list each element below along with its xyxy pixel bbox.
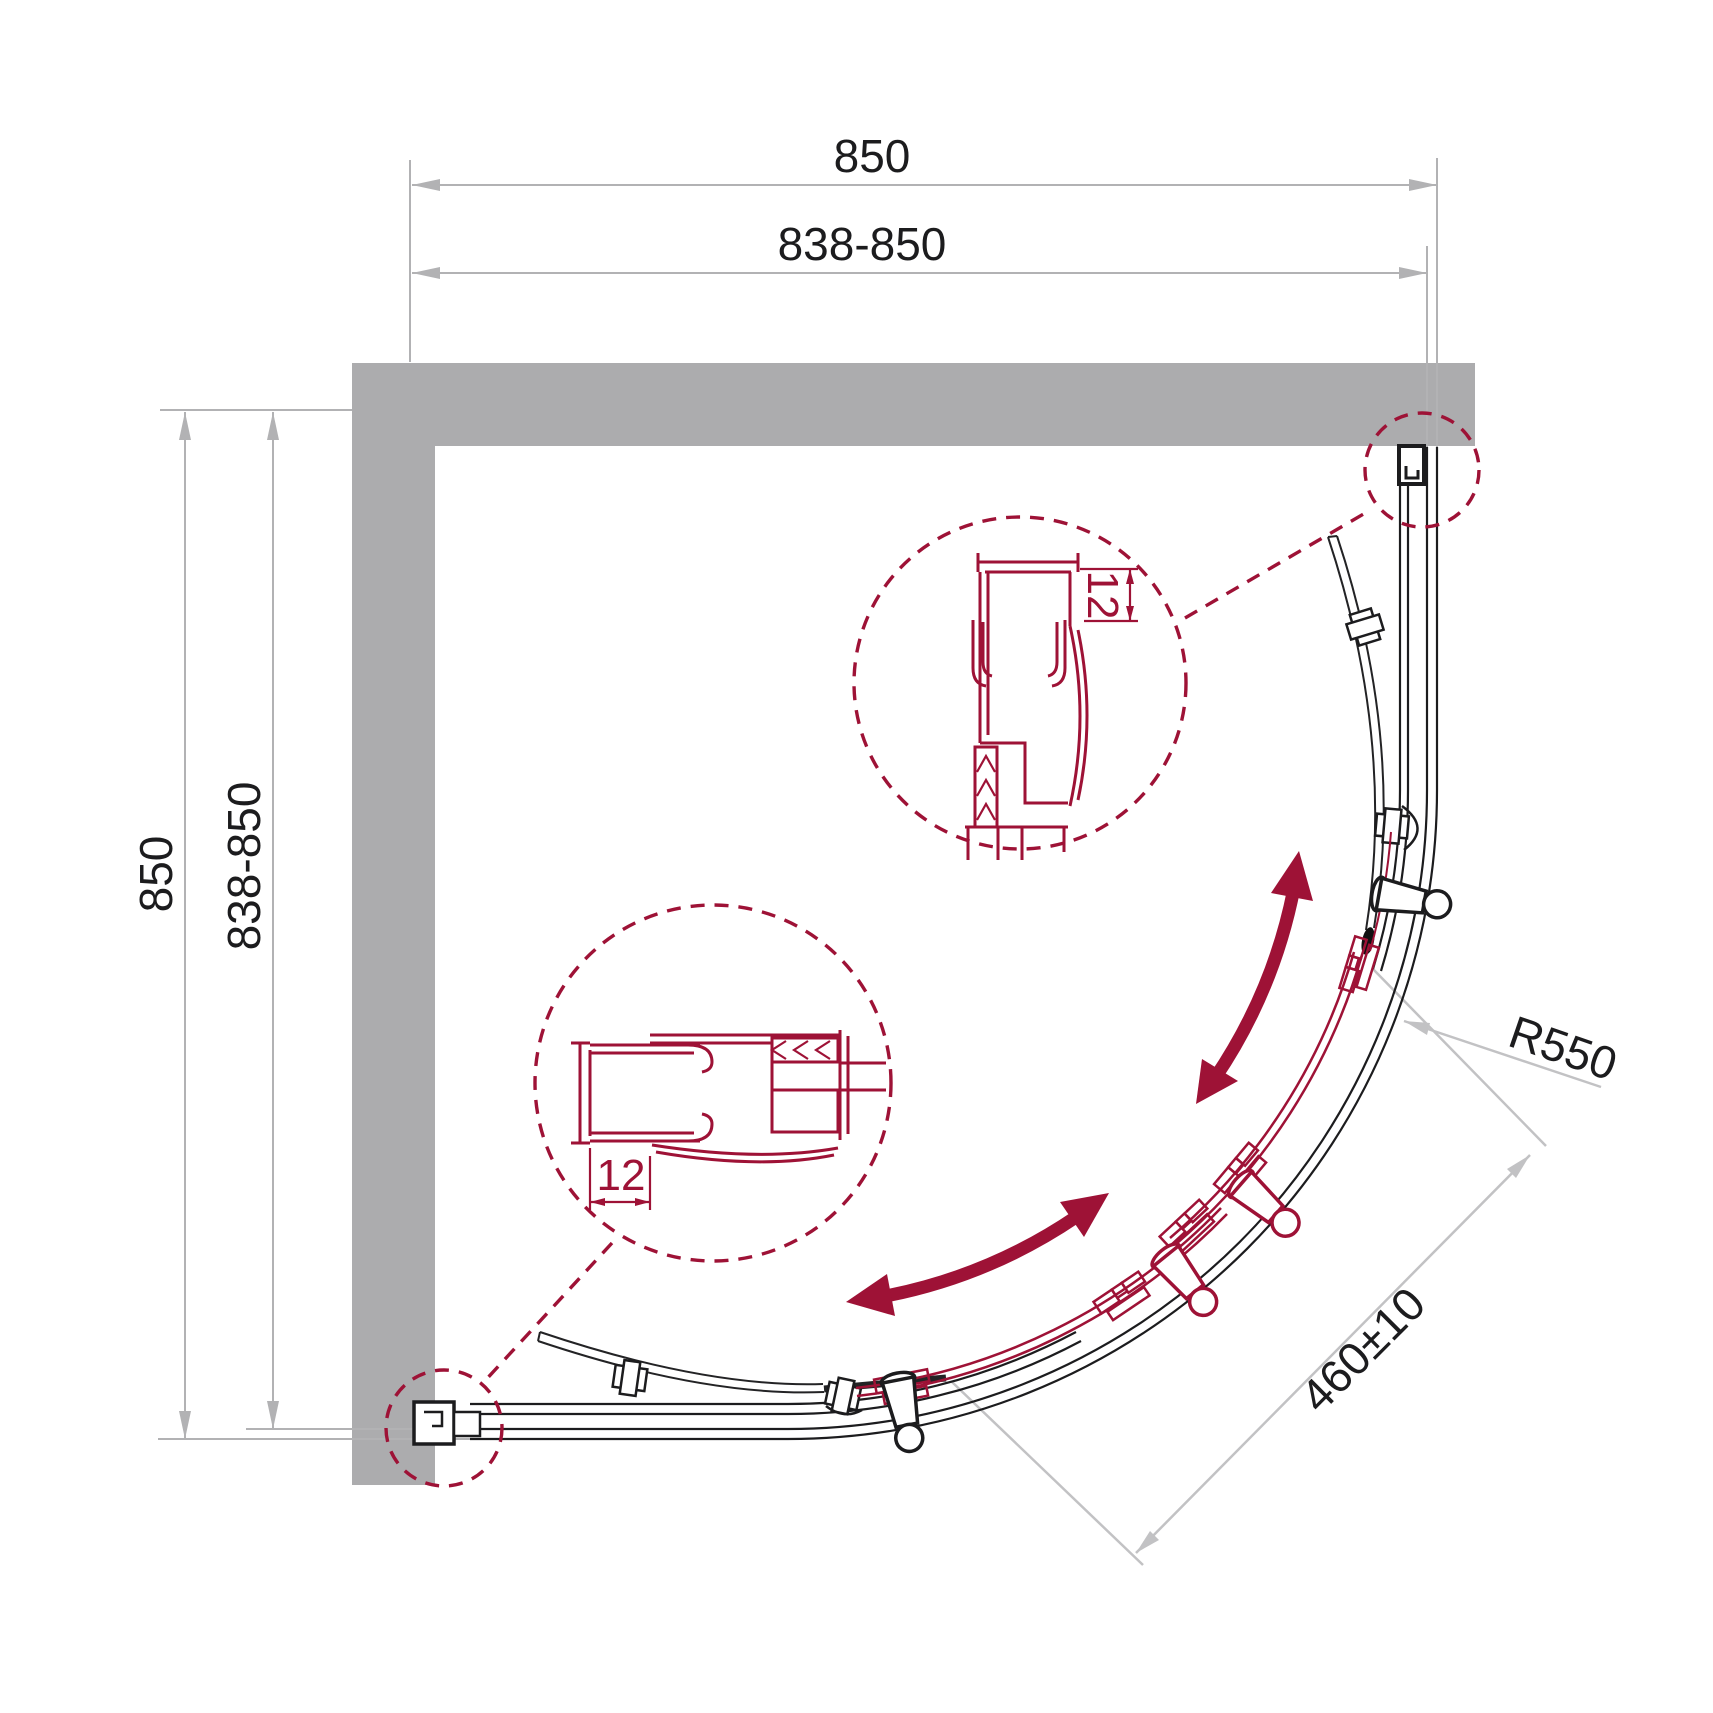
radius-dimension: R550 bbox=[1404, 1005, 1624, 1090]
dimension-lines bbox=[158, 158, 1437, 1439]
ext-lines-left bbox=[158, 410, 520, 1439]
swing-arrow-upper bbox=[1196, 851, 1313, 1104]
detail-circle-bottom bbox=[535, 905, 891, 1261]
profile-section-bottom bbox=[571, 1030, 886, 1162]
shower-enclosure-plan-drawing: 850 838-850 850 838-850 460±10 R550 bbox=[0, 0, 1713, 1713]
detail-circle-top bbox=[854, 517, 1186, 849]
diagonal-dimension bbox=[952, 968, 1546, 1565]
door-knob-icon bbox=[1369, 876, 1453, 923]
callout-leader-bottom bbox=[482, 1243, 612, 1384]
dim-left-outer-label: 850 bbox=[130, 836, 182, 913]
rail-outer-edge bbox=[470, 447, 1437, 1439]
dim-top-inner-label: 838-850 bbox=[778, 218, 947, 270]
diagonal-dimension-label: 460±10 bbox=[1290, 1277, 1435, 1422]
ghost-door-upper bbox=[1328, 536, 1384, 930]
dim-top-outer-label: 850 bbox=[834, 130, 911, 182]
sliding-doors bbox=[856, 832, 1391, 1396]
detail-callouts bbox=[386, 413, 1479, 1486]
clamp-bracket-icon bbox=[1375, 808, 1410, 845]
slide-direction-arrows bbox=[846, 851, 1313, 1316]
radius-label: R550 bbox=[1503, 1005, 1624, 1090]
walls bbox=[352, 363, 1475, 1485]
enclosure-frame bbox=[470, 447, 1437, 1439]
wall-top bbox=[352, 363, 1475, 446]
wall-left bbox=[352, 363, 435, 1485]
roller-icon bbox=[1094, 1272, 1153, 1324]
door-rollers bbox=[874, 936, 1380, 1405]
ghost-doors bbox=[538, 536, 1384, 1392]
plan-drawing-svg: 850 838-850 850 838-850 460±10 R550 bbox=[0, 0, 1713, 1713]
wall-profile-bottom-left bbox=[414, 1402, 480, 1444]
callout-leader-top bbox=[1185, 512, 1367, 618]
dim-left-inner-label: 838-850 bbox=[218, 782, 270, 951]
wall-profile-top-right bbox=[1399, 446, 1424, 484]
detail-top-dim-label: 12 bbox=[1078, 571, 1127, 620]
detail-bottom-dim-label: 12 bbox=[597, 1151, 646, 1200]
clamp-brackets bbox=[612, 607, 1418, 1416]
arrowhead-icon bbox=[846, 1274, 895, 1316]
arrowhead-icon bbox=[1271, 851, 1313, 901]
clamp-bracket-icon bbox=[612, 1359, 648, 1397]
radius-leader-arrowhead bbox=[1404, 1021, 1430, 1035]
swing-arrow-lower bbox=[846, 1193, 1109, 1316]
